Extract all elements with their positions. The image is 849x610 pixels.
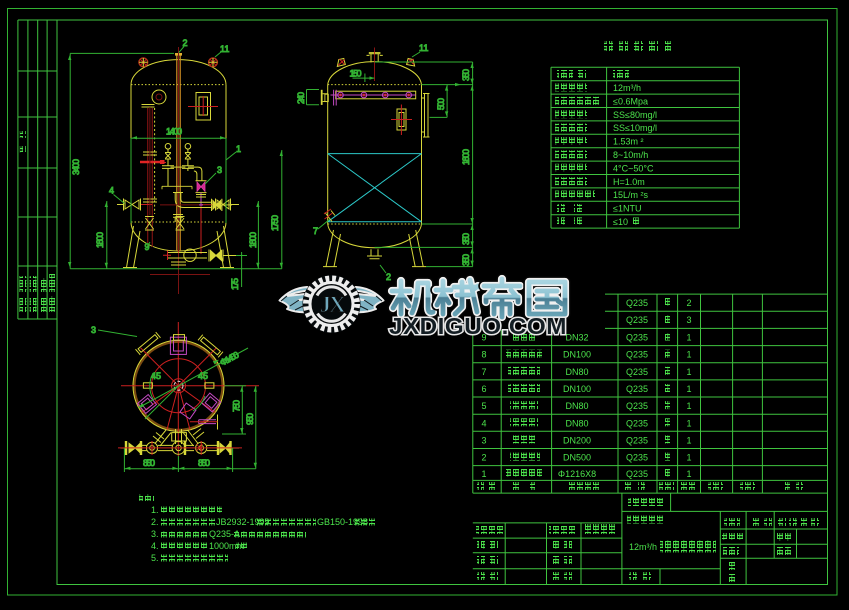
svg-text:≤10: ≤10 xyxy=(613,217,628,227)
svg-text:4°C~50°C: 4°C~50°C xyxy=(613,163,654,173)
svg-text:850: 850 xyxy=(198,458,210,468)
svg-text:12m³/h: 12m³/h xyxy=(613,83,641,93)
svg-text:DN200: DN200 xyxy=(563,435,591,445)
svg-text:Q235: Q235 xyxy=(626,453,648,463)
svg-text:≤0.6Mpa: ≤0.6Mpa xyxy=(613,96,648,106)
svg-text:JX: JX xyxy=(319,292,346,317)
svg-text:1.53m ²: 1.53m ² xyxy=(613,137,644,147)
svg-text:1: 1 xyxy=(686,333,691,343)
svg-text:SS≤10mg/l: SS≤10mg/l xyxy=(613,123,657,133)
svg-text:9: 9 xyxy=(145,242,150,252)
svg-text:DN80: DN80 xyxy=(565,367,588,377)
svg-text:1: 1 xyxy=(236,144,241,154)
svg-text:8: 8 xyxy=(481,350,486,360)
svg-text:Q235: Q235 xyxy=(626,401,648,411)
svg-text:1: 1 xyxy=(686,435,691,445)
svg-text:H=1.0m: H=1.0m xyxy=(613,177,645,187)
svg-text:1: 1 xyxy=(686,418,691,428)
svg-text:DN32: DN32 xyxy=(565,333,588,343)
svg-text:1: 1 xyxy=(686,453,691,463)
svg-text:2: 2 xyxy=(183,38,188,48)
svg-text:45: 45 xyxy=(151,371,161,381)
svg-text:350: 350 xyxy=(461,69,471,81)
svg-text:5: 5 xyxy=(481,401,486,411)
svg-text:5.: 5. xyxy=(151,553,159,563)
svg-text:8~10m/h: 8~10m/h xyxy=(613,150,648,160)
svg-text:950: 950 xyxy=(245,413,255,425)
svg-text:Q235: Q235 xyxy=(626,418,648,428)
svg-text:1: 1 xyxy=(481,469,486,479)
svg-text:2: 2 xyxy=(686,298,691,308)
svg-text:15L/m ²s: 15L/m ²s xyxy=(613,190,649,200)
svg-text:SS≤80mg/l: SS≤80mg/l xyxy=(613,110,657,120)
svg-text:500: 500 xyxy=(436,98,446,110)
svg-text:1800: 1800 xyxy=(248,232,258,248)
svg-text:Q235: Q235 xyxy=(626,315,648,325)
svg-text:2: 2 xyxy=(386,272,391,282)
svg-text:4: 4 xyxy=(481,418,486,428)
svg-text:3: 3 xyxy=(91,325,96,335)
svg-text:11: 11 xyxy=(220,44,229,54)
svg-text:1800: 1800 xyxy=(461,149,471,165)
svg-text:Φ1216X8: Φ1216X8 xyxy=(558,469,596,479)
svg-text:4: 4 xyxy=(109,186,114,196)
svg-text:1: 1 xyxy=(686,367,691,377)
svg-text:350: 350 xyxy=(461,254,471,266)
svg-text:150: 150 xyxy=(350,69,362,79)
svg-text:1800: 1800 xyxy=(95,232,105,248)
svg-text:DN500: DN500 xyxy=(563,453,591,463)
svg-text:1.: 1. xyxy=(151,505,159,515)
svg-text:7: 7 xyxy=(481,367,486,377)
svg-text:Q235: Q235 xyxy=(626,435,648,445)
svg-text:750: 750 xyxy=(232,400,242,412)
svg-text:175: 175 xyxy=(230,278,240,290)
svg-text:240: 240 xyxy=(296,92,306,104)
svg-text:45: 45 xyxy=(198,371,208,381)
svg-text:DN80: DN80 xyxy=(565,418,588,428)
svg-text:DN100: DN100 xyxy=(563,350,591,360)
svg-text:Q235: Q235 xyxy=(626,333,648,343)
svg-text:Q235: Q235 xyxy=(626,350,648,360)
svg-text:1: 1 xyxy=(686,469,691,479)
svg-text:≤1NTU: ≤1NTU xyxy=(613,204,641,214)
svg-text:JXDIGUO.COM: JXDIGUO.COM xyxy=(389,313,567,339)
svg-text:Q235: Q235 xyxy=(626,298,648,308)
svg-text:Q235: Q235 xyxy=(626,384,648,394)
svg-text:3: 3 xyxy=(481,435,486,445)
svg-text:2: 2 xyxy=(481,453,486,463)
svg-text:1400: 1400 xyxy=(166,127,182,137)
svg-text:11: 11 xyxy=(419,43,428,53)
svg-text:4.: 4. xyxy=(151,541,159,551)
svg-text:350: 350 xyxy=(461,233,471,245)
svg-text:1: 1 xyxy=(686,350,691,360)
svg-text:1750: 1750 xyxy=(270,215,280,231)
svg-text:DN100: DN100 xyxy=(563,384,591,394)
svg-text:2.: 2. xyxy=(151,517,159,527)
svg-text:6: 6 xyxy=(481,384,486,394)
svg-text:3.: 3. xyxy=(151,529,159,539)
svg-text:3: 3 xyxy=(217,165,222,175)
svg-text:DN80: DN80 xyxy=(565,401,588,411)
svg-text:1: 1 xyxy=(686,384,691,394)
svg-text:7: 7 xyxy=(313,226,318,236)
svg-text:Q235: Q235 xyxy=(626,469,648,479)
svg-text:Q235: Q235 xyxy=(626,367,648,377)
svg-text:3400: 3400 xyxy=(71,159,81,175)
svg-text:3: 3 xyxy=(686,315,691,325)
svg-text:850: 850 xyxy=(143,458,155,468)
svg-text:12m³/h: 12m³/h xyxy=(629,542,657,552)
svg-text:1: 1 xyxy=(686,401,691,411)
